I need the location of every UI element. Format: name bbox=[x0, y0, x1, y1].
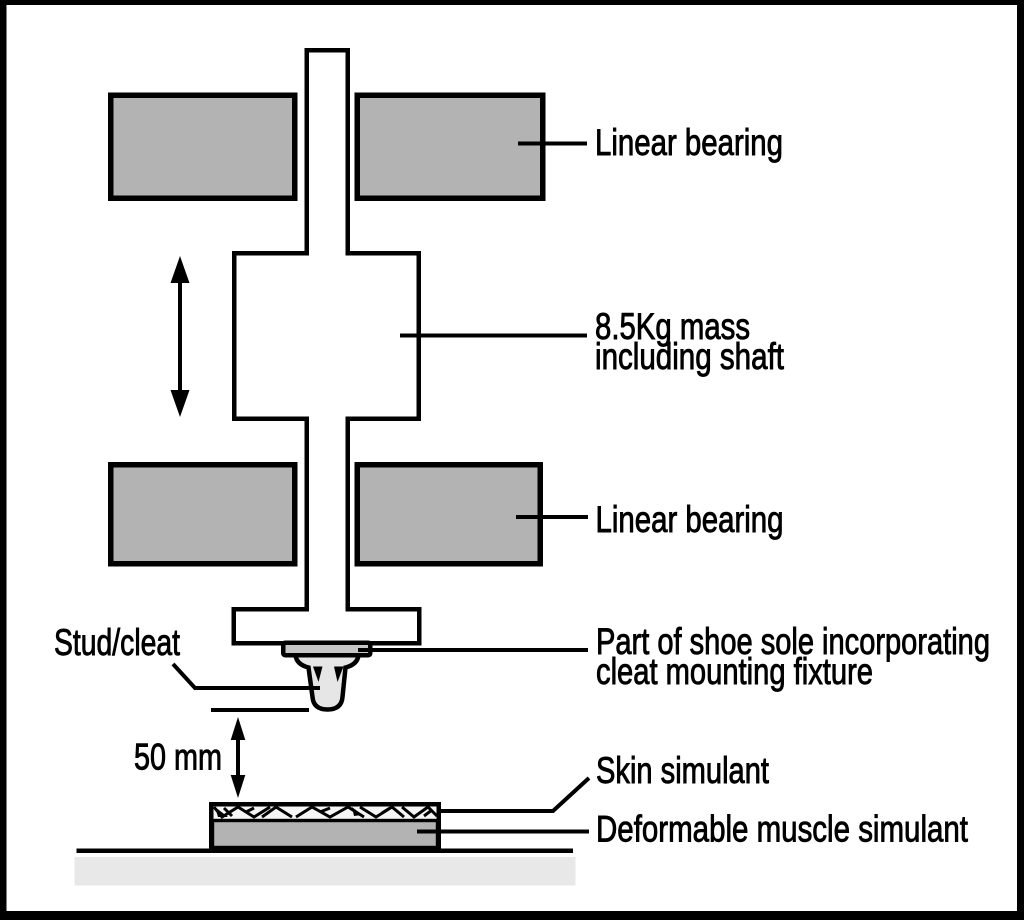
svg-text:50 mm: 50 mm bbox=[134, 737, 222, 778]
svg-text:including shaft: including shaft bbox=[595, 336, 785, 377]
svg-text:Linear bearing: Linear bearing bbox=[595, 122, 783, 163]
svg-text:cleat mounting fixture: cleat mounting fixture bbox=[596, 651, 873, 692]
svg-text:Stud/cleat: Stud/cleat bbox=[54, 622, 181, 663]
svg-text:Skin simulant: Skin simulant bbox=[596, 750, 770, 791]
svg-text:Deformable muscle simulant: Deformable muscle simulant bbox=[596, 809, 969, 850]
svg-text:Linear bearing: Linear bearing bbox=[596, 499, 784, 540]
